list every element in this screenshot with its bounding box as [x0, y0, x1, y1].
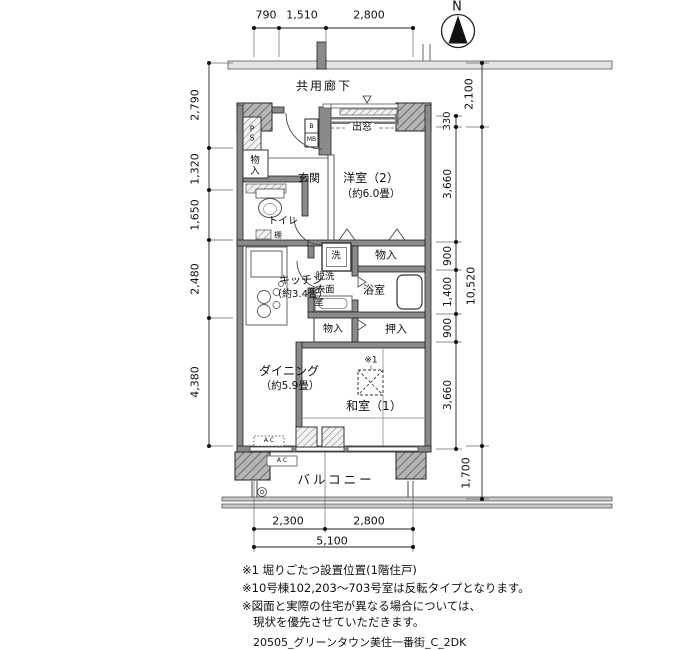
closet-door-mark — [389, 229, 405, 240]
bathtub — [397, 275, 422, 309]
western-room-label: 洋室（2） — [343, 172, 399, 184]
dim-left-4: 4,380 — [190, 366, 201, 398]
drain-icon — [258, 488, 267, 497]
genkan-label: 玄関 — [298, 173, 320, 184]
western-room-size: （約6.0畳） — [342, 189, 401, 200]
common-corridor-lines — [228, 42, 612, 69]
washroom-label-2: 衣面 — [315, 285, 334, 295]
pipe-space-label: PS — [248, 126, 257, 143]
toilet-label: トイレ — [268, 217, 298, 227]
dim-right-inner-4: 900 — [443, 316, 454, 340]
note-line-3: ※図面と実際の住宅が異なる場合については、 — [242, 598, 481, 614]
shelf-label: 棚 — [274, 231, 282, 239]
dim-bottom-1: 2,800 — [351, 516, 387, 527]
kitchen-sink — [251, 251, 282, 277]
shutter-pocket — [322, 427, 344, 447]
meter-mb-label: MB — [307, 137, 316, 143]
corridor-label: 共用廊下 — [296, 80, 352, 92]
north-label: N — [452, 1, 462, 14]
closet-door-mark — [339, 229, 355, 240]
dim-right-outer-0: 2,100 — [464, 76, 475, 112]
washitsu-label: 和室（1） — [346, 400, 402, 412]
shutter-pocket — [296, 427, 317, 447]
dim-top-2: 2,800 — [353, 10, 385, 21]
note-line-4: 現状を優先させていただきます。 — [253, 614, 424, 630]
note-line-1: ※1 堀りごたつ設置位置(1階住戸) — [242, 562, 417, 578]
dim-right-inner-5: 3,660 — [443, 378, 454, 412]
ac-outer-label: A C — [277, 458, 287, 464]
drawing-code: 20505_グリーンタウン美住一番街_C_2DK — [253, 634, 466, 650]
dim-bottom-0: 2,300 — [270, 516, 306, 527]
dim-right-inner-3: 1,400 — [443, 275, 454, 309]
level-mark-icon — [363, 96, 371, 103]
dim-left-3: 2,480 — [190, 263, 201, 295]
washroom-label-3: 室 — [314, 298, 324, 308]
genkan-closet-label: 物入 — [250, 155, 261, 177]
washitsu-parts — [296, 348, 425, 447]
washroom-label-1: 脱洗 — [315, 272, 334, 282]
balcony-label: バルコニー — [297, 474, 374, 487]
kotatsu-mark-label: ※1 — [362, 357, 379, 366]
floor-plan-page: N 共用廊下 出窓 洋室（2） （約6.0畳） 玄関 PS B MB 物入 トイ… — [0, 0, 700, 650]
dim-left-1: 1,320 — [190, 153, 201, 185]
laundry-label: 洗 — [331, 251, 341, 261]
dim-right-inner-0: 330 — [443, 109, 453, 132]
balcony-parts — [222, 481, 612, 508]
dining-label: ダイニング — [259, 365, 319, 377]
dim-right-outer-1: 10,520 — [466, 265, 477, 308]
sliding-door-line — [328, 155, 334, 240]
dim-top-1: 1,510 — [286, 10, 318, 21]
meter-b-label: B — [309, 123, 313, 130]
dim-right-inner-2: 900 — [443, 244, 454, 268]
oshiire-label: 押入 — [385, 324, 407, 335]
dining-size: （約5.9畳） — [261, 381, 320, 392]
dim-left-0: 2,790 — [190, 89, 201, 121]
compass-icon — [442, 15, 475, 48]
bay-window-label: 出窓 — [350, 123, 374, 133]
lower-closet-label: 物入 — [323, 325, 343, 335]
bottom-windows — [250, 447, 418, 451]
dim-right-inner-1: 3,660 — [443, 167, 454, 201]
note-line-2: ※10号棟102,203〜703号室は反転タイプとなります。 — [242, 580, 530, 596]
dim-top-0: 790 — [256, 10, 277, 21]
dim-left-2: 1,650 — [190, 199, 201, 231]
oshiire-door-mark — [358, 320, 366, 330]
upper-closet-label: 物入 — [375, 250, 397, 261]
ac-inner-label: A C — [264, 438, 274, 444]
bath-label: 浴室 — [363, 285, 385, 296]
dim-bottom-total: 5,100 — [314, 536, 350, 547]
dim-right-outer-2: 1,700 — [461, 455, 472, 491]
toilet-shelf-box — [256, 230, 271, 239]
floor-plan-drawing — [0, 0, 700, 650]
